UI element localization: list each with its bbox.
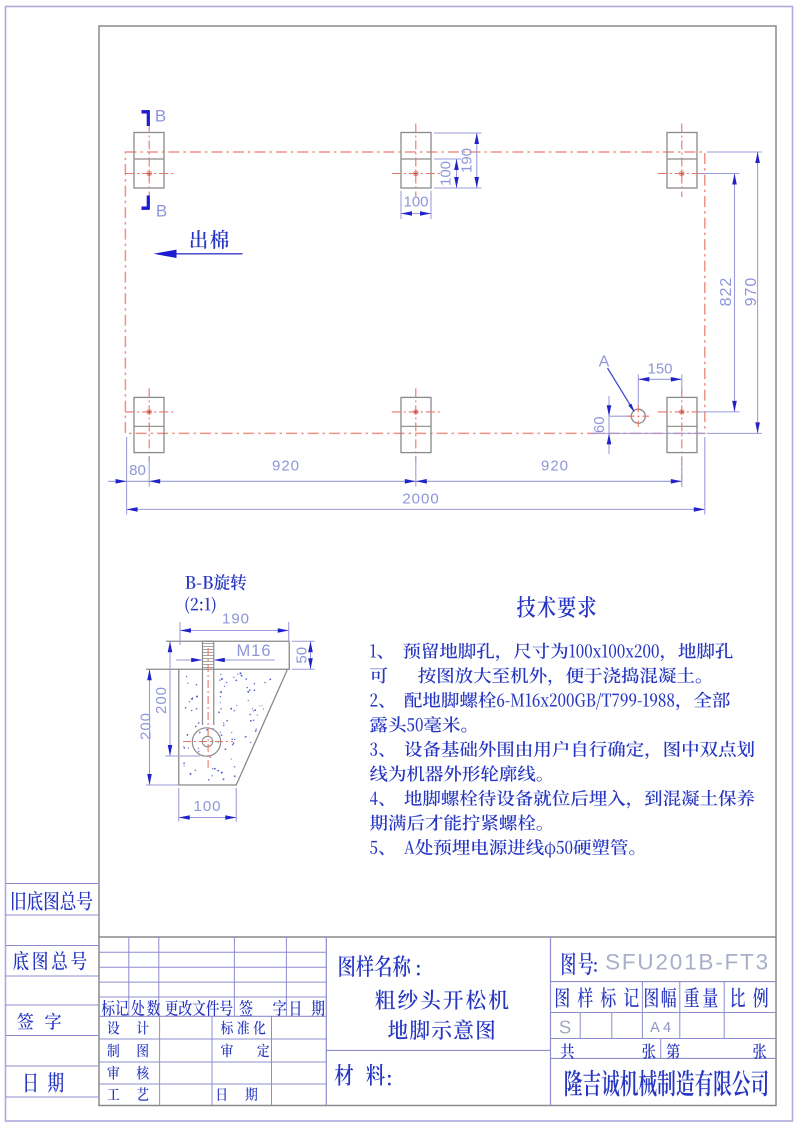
svg-text:A 4: A 4	[650, 1020, 671, 1036]
svg-text:100: 100	[438, 161, 455, 186]
svg-text:150: 150	[647, 361, 672, 378]
svg-text:190: 190	[222, 611, 250, 628]
svg-text:50: 50	[294, 647, 311, 664]
svg-text:920: 920	[272, 458, 300, 475]
svg-text:60: 60	[591, 416, 608, 433]
svg-text:822: 822	[718, 277, 735, 307]
svg-text:920: 920	[541, 458, 569, 475]
svg-text:190: 190	[459, 148, 476, 173]
svg-text:200: 200	[137, 712, 154, 740]
svg-text:S: S	[559, 1016, 571, 1037]
svg-text:B: B	[155, 106, 166, 125]
svg-text:100: 100	[193, 798, 221, 815]
svg-text:200: 200	[153, 686, 170, 714]
svg-text:970: 970	[743, 277, 760, 307]
svg-text:100: 100	[403, 194, 428, 211]
svg-text:B: B	[156, 201, 167, 220]
svg-text:2000: 2000	[402, 490, 439, 507]
svg-text:80: 80	[129, 462, 146, 479]
svg-text:SFU201B-FT3: SFU201B-FT3	[605, 950, 770, 975]
svg-text:M16: M16	[236, 642, 271, 660]
